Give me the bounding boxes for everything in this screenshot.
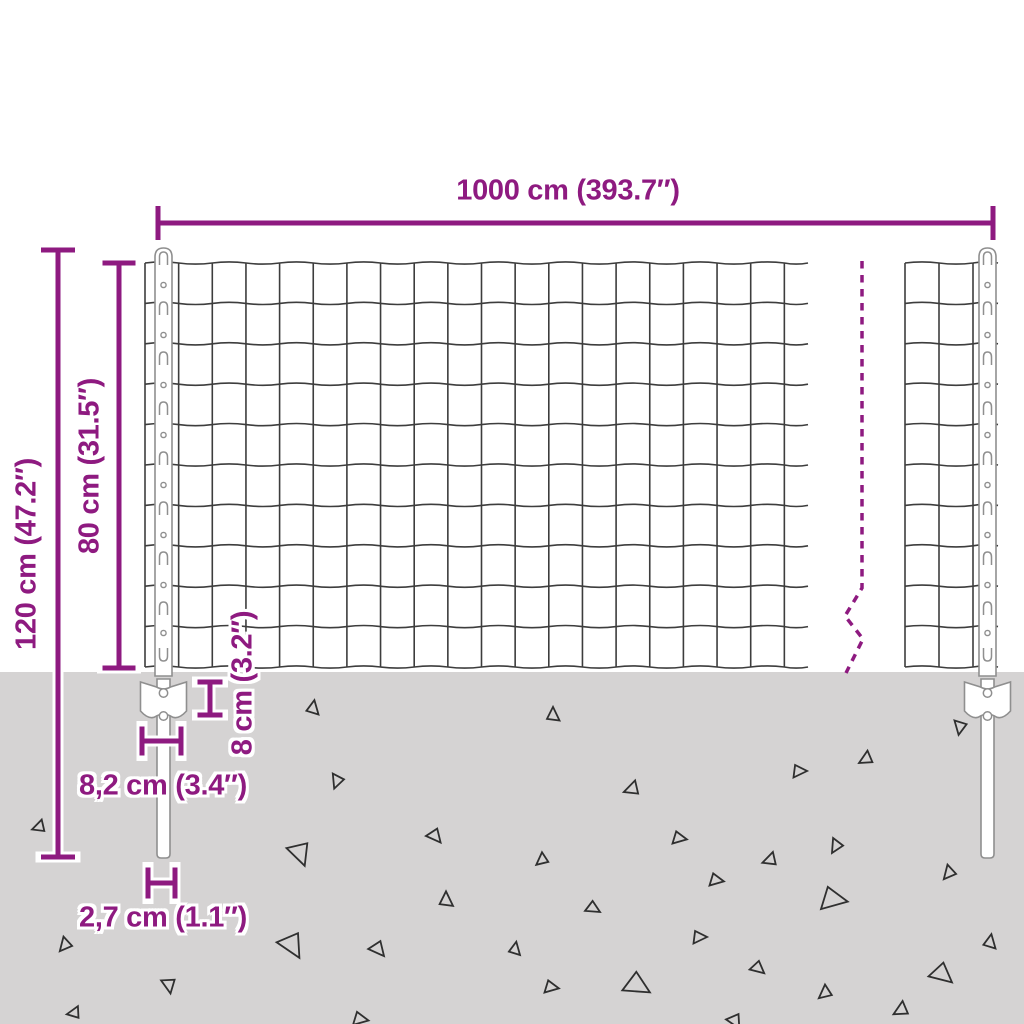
dimension-label-mesh-height: 80 cm (31.5″) <box>74 378 107 554</box>
diagram-canvas <box>0 0 1024 1024</box>
dimension-label-total-height: 120 cm (47.2″) <box>11 458 44 650</box>
dimension-label-total-width: 1000 cm (393.7″) <box>456 175 680 208</box>
dimension-label-spike-width: 2,7 cm (1.1″) <box>79 902 247 935</box>
fence-dimension-diagram: 1000 cm (393.7″) 120 cm (47.2″) 80 cm (3… <box>0 0 1024 1024</box>
dimension-label-anchor-plate-width: 8,2 cm (3.4″) <box>79 770 247 803</box>
dimension-label-anchor-height: 8 cm (3.2″) <box>227 611 260 755</box>
